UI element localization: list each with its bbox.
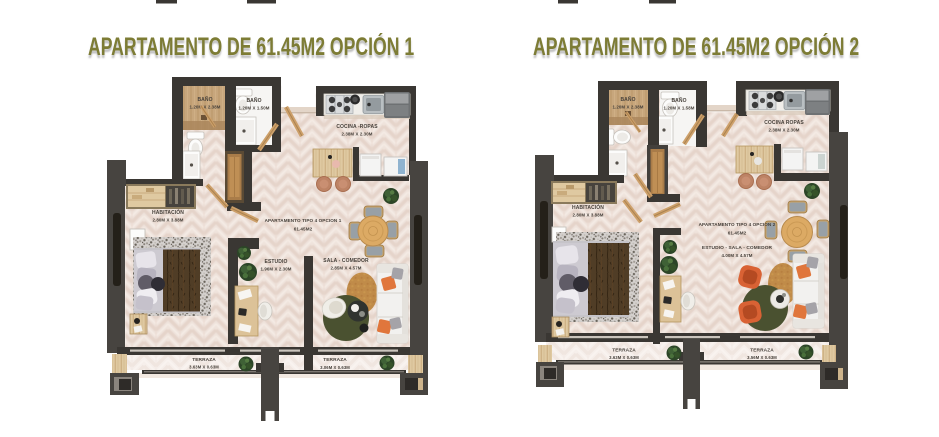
svg-text:1.20M X 1.58M: 1.20M X 1.58M (663, 106, 694, 111)
svg-text:BAÑO: BAÑO (246, 97, 261, 104)
svg-text:3.63M X 0.63M: 3.63M X 0.63M (189, 365, 219, 370)
svg-text:APARTAMENTO TIPO 4 OPCION 1: APARTAMENTO TIPO 4 OPCION 1 (265, 218, 342, 223)
svg-text:COCINA ROPAS: COCINA ROPAS (764, 120, 804, 126)
svg-text:2.80M X 3.88M: 2.80M X 3.88M (152, 218, 183, 223)
svg-text:1.20M X 1.50M: 1.20M X 1.50M (238, 106, 269, 111)
svg-text:3.63M X 0.63M: 3.63M X 0.63M (609, 355, 639, 360)
svg-text:ESTUDIO: ESTUDIO (265, 259, 288, 265)
svg-text:COCINA -ROPAS: COCINA -ROPAS (336, 124, 378, 130)
svg-text:3.06M X 0.63M: 3.06M X 0.63M (320, 365, 350, 370)
svg-text:2.38M X 2.30M: 2.38M X 2.30M (341, 132, 372, 137)
svg-text:1.20M X 2.38M: 1.20M X 2.38M (189, 105, 220, 110)
svg-text:BAÑO: BAÑO (671, 97, 686, 104)
svg-text:TERRAZA: TERRAZA (192, 357, 216, 363)
svg-text:HABITACIÓN: HABITACIÓN (152, 208, 184, 216)
svg-text:BAÑO: BAÑO (197, 96, 212, 103)
svg-text:ESTUDIO - SALA - COMEDOR: ESTUDIO - SALA - COMEDOR (702, 245, 773, 251)
svg-text:HABITACIÓN: HABITACIÓN (572, 203, 604, 211)
svg-text:1.96M X 2.30M: 1.96M X 2.30M (260, 267, 291, 272)
svg-text:TERRAZA: TERRAZA (612, 348, 636, 354)
svg-text:2.38M X 2.30M: 2.38M X 2.30M (768, 128, 799, 133)
svg-text:3.56M X 0.63M: 3.56M X 0.63M (747, 355, 777, 360)
svg-text:TERRAZA: TERRAZA (323, 357, 347, 363)
svg-text:4.00M X 4.57M: 4.00M X 4.57M (721, 253, 752, 258)
svg-text:1.20M X 2.38M: 1.20M X 2.38M (612, 105, 643, 110)
svg-text:61.45M2: 61.45M2 (294, 227, 313, 232)
svg-text:2.80M X 3.88M: 2.80M X 3.88M (572, 213, 603, 218)
svg-text:2.85M X 4.57M: 2.85M X 4.57M (330, 266, 361, 271)
svg-text:SALA - COMEDOR: SALA - COMEDOR (323, 258, 369, 264)
svg-text:BAÑO: BAÑO (620, 96, 635, 103)
svg-text:TERRAZA: TERRAZA (750, 348, 774, 354)
svg-text:61.45M2: 61.45M2 (728, 231, 747, 236)
svg-text:APARTAMENTO TIPO 4 OPCION 2: APARTAMENTO TIPO 4 OPCION 2 (699, 222, 776, 227)
